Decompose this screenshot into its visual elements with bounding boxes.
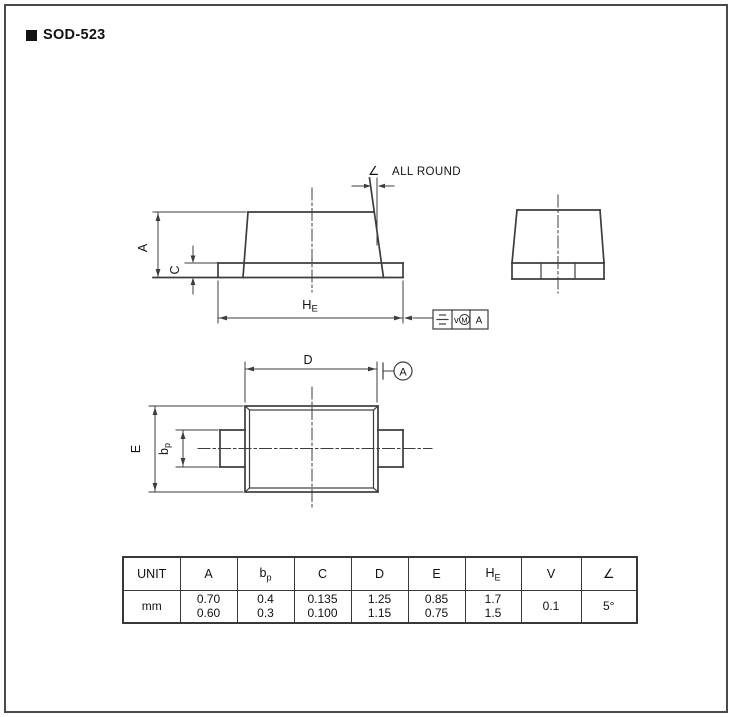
cell-bp: 0.40.3 [237, 591, 294, 624]
dimension-table: UNIT A bp C D E HE V ∠ mm 0.700.60 0.40.… [122, 556, 638, 624]
header-v: V [521, 557, 581, 591]
dim-bp-label: bp [157, 443, 172, 455]
cell-a: 0.700.60 [180, 591, 237, 624]
fcf-datum-ref: A [476, 316, 483, 327]
dim-bp-main: b [157, 448, 171, 455]
dim-arrow-icon [191, 278, 196, 286]
leader-arrow-icon [404, 316, 412, 321]
cell-angle: 5° [581, 591, 637, 624]
package-outline-page: SOD-523 ∠ ALL R [0, 0, 733, 717]
dim-c-label: C [168, 265, 182, 274]
header-c: C [294, 557, 351, 591]
dim-arrow-icon [156, 269, 161, 277]
feature-control-frame: v M A [404, 310, 488, 329]
table-header-row: UNIT A bp C D E HE V ∠ [123, 557, 637, 591]
dim-arrow-icon [153, 407, 158, 415]
angle-symbol: ∠ [368, 164, 379, 178]
dim-he-main: H [302, 297, 311, 312]
dim-arrow-icon [368, 367, 376, 372]
dim-arrow-icon [219, 316, 227, 321]
dim-c: C [168, 246, 217, 294]
dim-he: HE [218, 281, 403, 323]
header-a: A [180, 557, 237, 591]
datum-a-label: A [399, 367, 407, 379]
dim-d-label: D [303, 353, 312, 367]
header-unit: UNIT [123, 557, 180, 591]
dim-bp-sub: p [162, 443, 172, 448]
dim-e-label: E [129, 445, 143, 453]
dim-arrow-icon [181, 431, 186, 439]
dim-arrow-icon [153, 483, 158, 491]
header-angle: ∠ [581, 557, 637, 591]
cell-d: 1.251.15 [351, 591, 408, 624]
cell-c: 0.1350.100 [294, 591, 351, 624]
cell-he: 1.71.5 [465, 591, 521, 624]
dim-arrow-icon [191, 256, 196, 264]
dim-arrow-icon [181, 458, 186, 466]
header-d: D [351, 557, 408, 591]
dim-arrow-icon [394, 316, 402, 321]
cell-unit: mm [123, 591, 180, 624]
dim-a-label: A [136, 243, 150, 252]
dim-d: D [245, 353, 377, 402]
dim-arrow-icon [156, 213, 161, 221]
header-he: HE [465, 557, 521, 591]
datum-a-flag: A [383, 362, 412, 380]
fcf-mmc-modifier: M [461, 315, 467, 324]
dim-he-label: HE [302, 297, 318, 315]
end-view [512, 195, 604, 293]
dim-he-sub: E [312, 304, 318, 315]
top-view: D A E [129, 353, 432, 508]
leader-arrow-icon [378, 184, 385, 189]
dim-arrow-icon [246, 367, 254, 372]
front-view: ∠ ALL ROUND A C [136, 164, 488, 329]
cell-e: 0.850.75 [408, 591, 465, 624]
header-e: E [408, 557, 465, 591]
all-round-callout: ∠ ALL ROUND [352, 164, 461, 245]
all-round-label: ALL ROUND [392, 166, 461, 178]
header-bp: bp [237, 557, 294, 591]
table-data-row: mm 0.700.60 0.40.3 0.1350.100 1.251.15 0… [123, 591, 637, 624]
cell-v: 0.1 [521, 591, 581, 624]
dim-a: A [136, 212, 246, 277]
fcf-tolerance-var: v [454, 315, 459, 326]
